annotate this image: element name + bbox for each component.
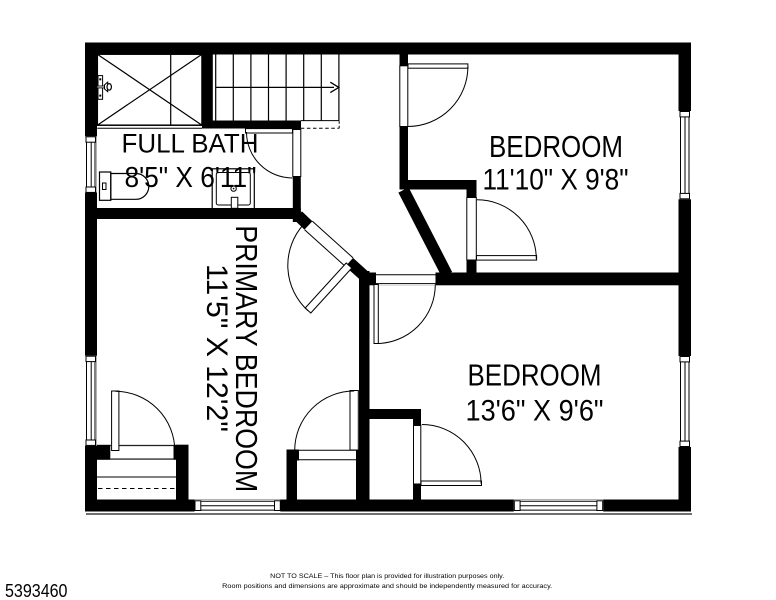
svg-text:PRIMARY BEDROOM: PRIMARY BEDROOM	[229, 225, 264, 492]
svg-text:BEDROOM: BEDROOM	[468, 358, 602, 392]
svg-text:BEDROOM: BEDROOM	[489, 129, 623, 164]
svg-text:FULL BATH: FULL BATH	[122, 128, 259, 158]
svg-text:8'5" X 6'11": 8'5" X 6'11"	[125, 162, 257, 194]
svg-text:NOT TO SCALE – This floor plan: NOT TO SCALE – This floor plan is provid…	[270, 573, 504, 580]
svg-text:5393460: 5393460	[5, 580, 68, 600]
svg-text:Room positions and dimensions: Room positions and dimensions are approx…	[222, 583, 552, 590]
svg-text:11'5" X 12'2": 11'5" X 12'2"	[200, 264, 233, 432]
svg-text:13'6" X 9'6": 13'6" X 9'6"	[466, 395, 604, 428]
svg-text:11'10" X 9'8": 11'10" X 9'8"	[483, 164, 629, 197]
